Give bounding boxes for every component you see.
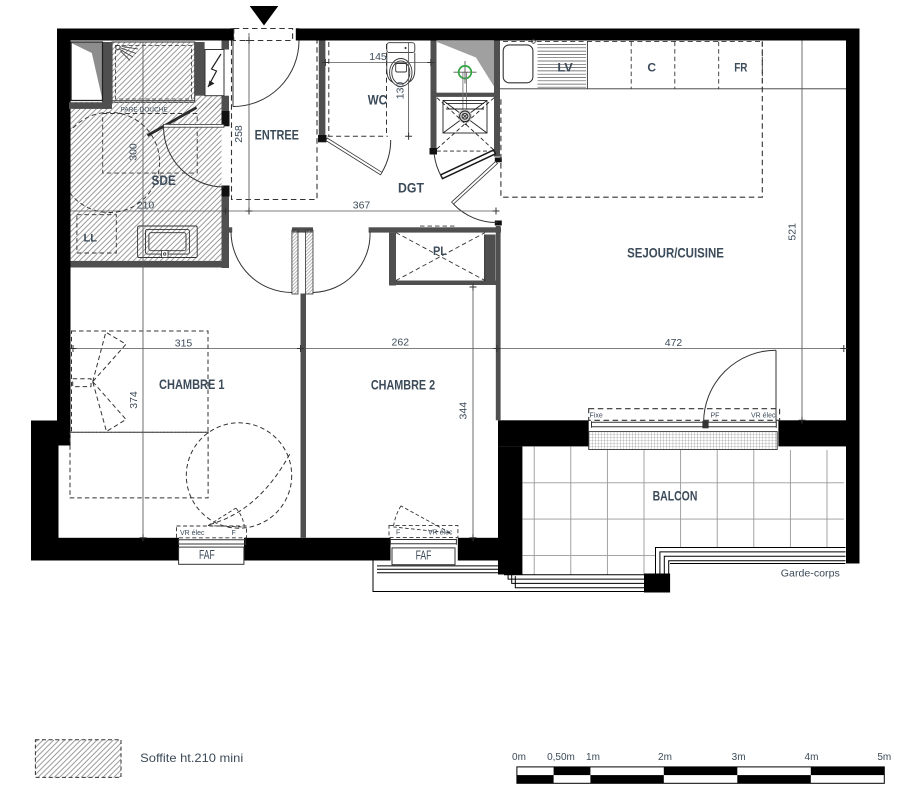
svg-text:130: 130 (395, 82, 407, 100)
svg-text:CHAMBRE 1: CHAMBRE 1 (159, 376, 225, 392)
svg-text:LV: LV (557, 60, 573, 74)
svg-text:472: 472 (665, 337, 683, 349)
svg-text:210: 210 (137, 200, 155, 212)
svg-text:FAF: FAF (416, 548, 432, 563)
svg-text:2m: 2m (658, 752, 672, 763)
svg-text:LL: LL (84, 233, 98, 245)
svg-text:Garde-corps: Garde-corps (781, 569, 840, 580)
svg-text:344: 344 (458, 402, 470, 420)
svg-text:258: 258 (233, 125, 245, 143)
svg-text:WC: WC (368, 92, 387, 108)
svg-text:SEJOUR/CUISINE: SEJOUR/CUISINE (627, 245, 724, 261)
svg-text:367: 367 (353, 200, 371, 212)
svg-text:4m: 4m (805, 752, 819, 763)
svg-text:315: 315 (175, 337, 193, 349)
svg-text:ENTREE: ENTREE (255, 127, 299, 143)
svg-text:145: 145 (369, 51, 387, 63)
svg-text:FR: FR (734, 60, 747, 74)
svg-text:Fixe: Fixe (590, 413, 603, 420)
svg-text:VR élec: VR élec (180, 530, 205, 537)
svg-text:5m: 5m (877, 752, 891, 763)
svg-text:1m: 1m (586, 752, 600, 763)
svg-text:SDE: SDE (152, 172, 176, 188)
svg-text:F: F (396, 529, 400, 536)
svg-text:521: 521 (786, 223, 798, 241)
svg-text:3m: 3m (732, 752, 746, 763)
svg-text:FAF: FAF (199, 547, 215, 562)
svg-text:PL: PL (433, 246, 447, 258)
svg-text:374: 374 (128, 391, 140, 409)
svg-text:F: F (232, 530, 236, 537)
svg-text:PF: PF (711, 413, 720, 420)
svg-text:Soffite ht.210 mini: Soffite ht.210 mini (140, 751, 243, 765)
svg-text:CHAMBRE 2: CHAMBRE 2 (371, 376, 435, 392)
svg-text:262: 262 (392, 336, 410, 348)
svg-text:BALCON: BALCON (653, 488, 698, 504)
svg-text:VR élec: VR élec (751, 413, 776, 420)
svg-text:300: 300 (128, 143, 140, 161)
svg-text:0,50m: 0,50m (547, 752, 575, 763)
svg-text:VR élec: VR élec (428, 529, 453, 536)
svg-text:DGT: DGT (398, 179, 424, 195)
svg-text:C: C (647, 60, 656, 74)
svg-text:PARE DOUCHE: PARE DOUCHE (121, 107, 169, 114)
svg-text:0m: 0m (512, 752, 526, 763)
